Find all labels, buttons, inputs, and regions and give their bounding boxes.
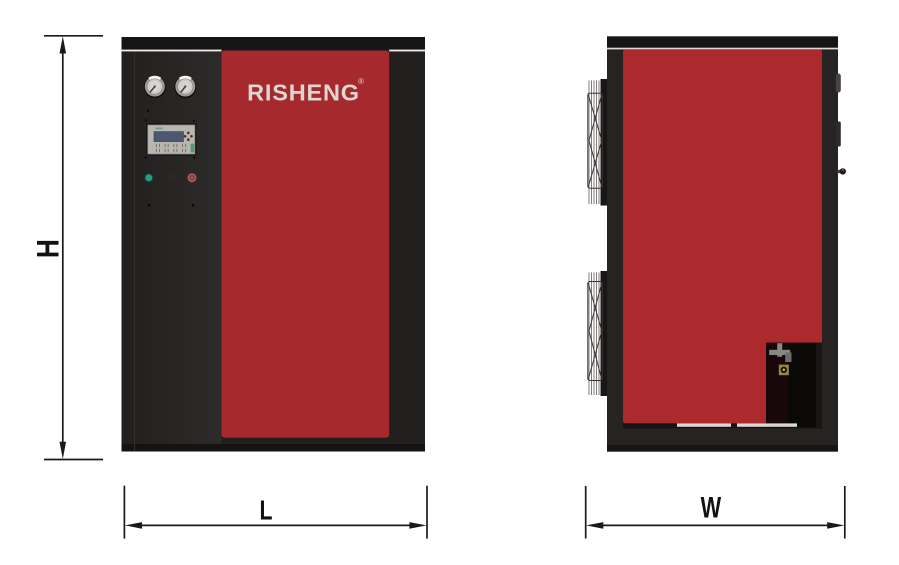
svg-text:®: ® <box>358 77 364 86</box>
svg-text:W: W <box>701 491 722 524</box>
svg-text:L: L <box>260 495 273 526</box>
svg-text:RISHENG: RISHENG <box>247 79 360 105</box>
svg-text:H: H <box>30 239 66 258</box>
